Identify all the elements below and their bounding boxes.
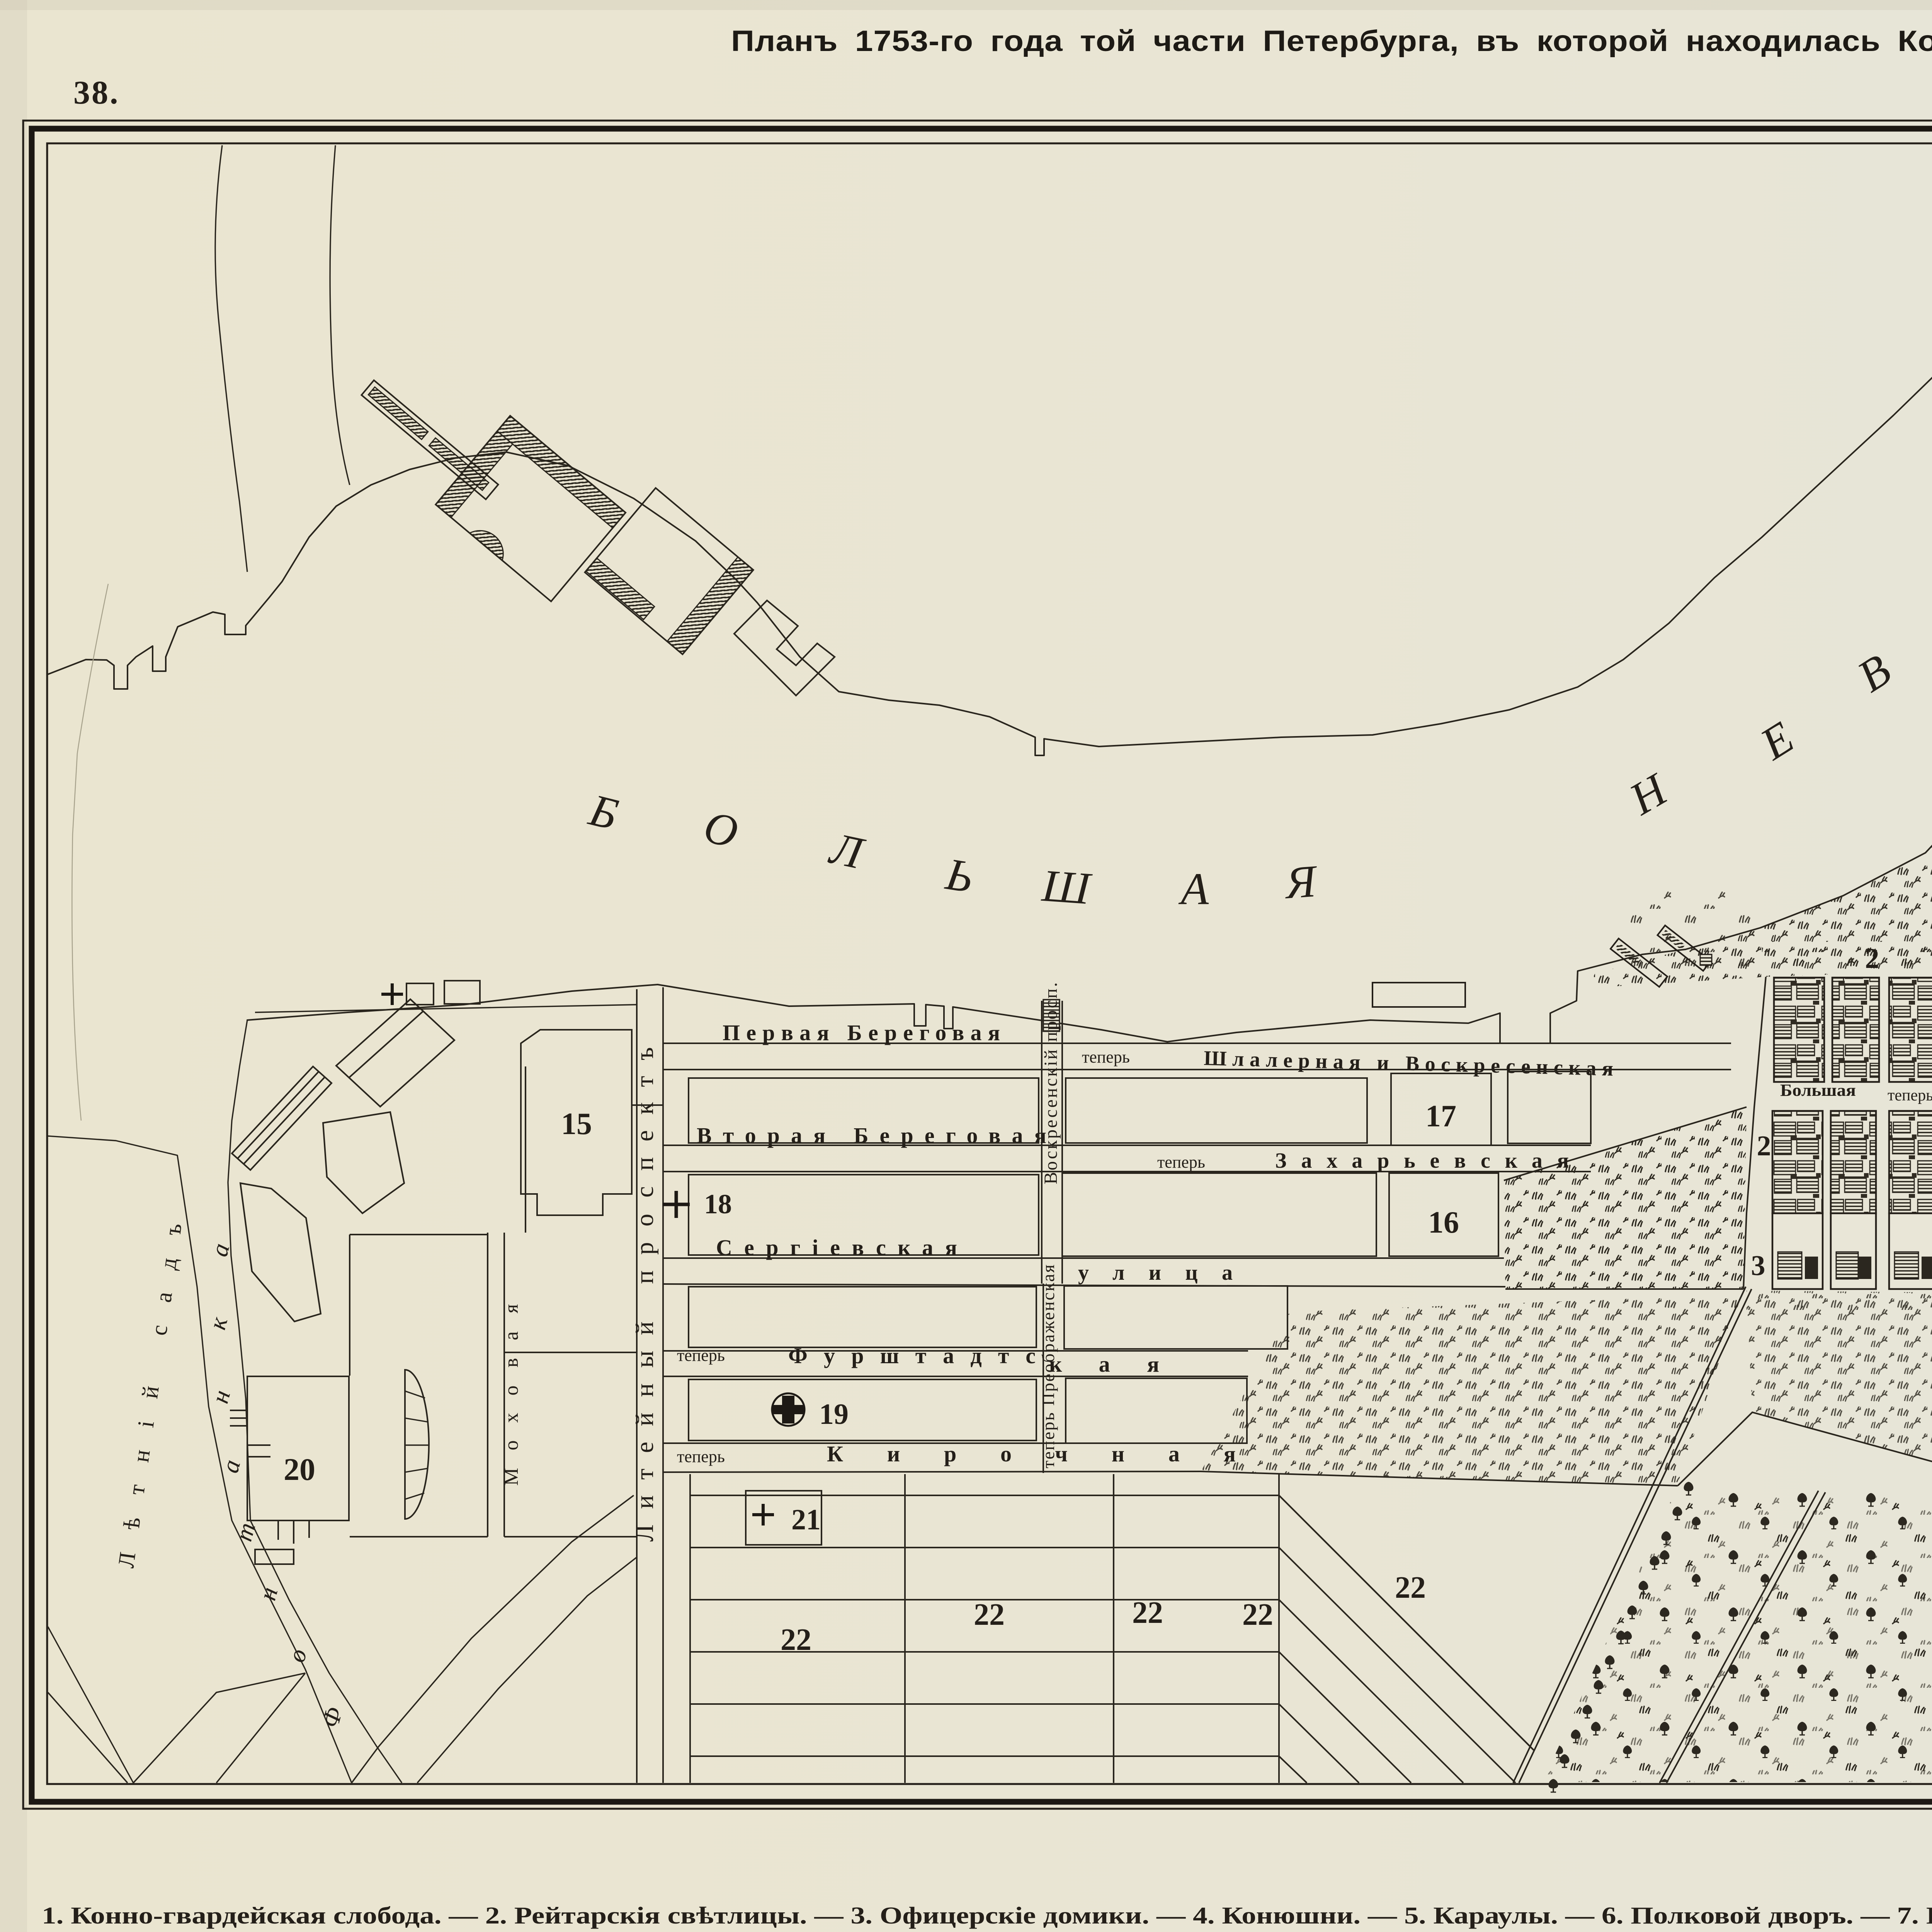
svg-text:18: 18 — [704, 1189, 732, 1219]
svg-text:19: 19 — [819, 1398, 849, 1430]
svg-text:Я: Я — [1282, 855, 1320, 908]
svg-text:15: 15 — [561, 1107, 592, 1141]
svg-text:Большая: Большая — [1780, 1081, 1856, 1100]
svg-text:теперь: теперь — [1888, 1087, 1932, 1104]
svg-text:17: 17 — [1425, 1099, 1456, 1133]
svg-text:Воскресенскій просп.: Воскресенскій просп. — [1041, 981, 1061, 1184]
svg-text:2: 2 — [1865, 943, 1879, 975]
svg-text:20: 20 — [284, 1452, 315, 1487]
svg-text:Первая Береговая: Первая Береговая — [723, 1020, 1000, 1045]
svg-text:Планъ 1753-го года той части П: Планъ 1753-го года той части Петербурга,… — [731, 25, 1932, 58]
svg-text:22: 22 — [781, 1623, 811, 1657]
svg-text:16: 16 — [1428, 1206, 1459, 1240]
svg-text:2: 2 — [1757, 1130, 1771, 1162]
svg-text:А: А — [1178, 864, 1209, 914]
svg-text:22: 22 — [974, 1598, 1005, 1632]
svg-text:1. Конно-гвардейская слобода.: 1. Конно-гвардейская слобода. — 2. Рейта… — [42, 1903, 1932, 1929]
svg-text:теперь: теперь — [1082, 1048, 1130, 1066]
svg-text:теперь: теперь — [1157, 1153, 1205, 1172]
svg-text:Ш: Ш — [1040, 860, 1094, 914]
svg-text:22: 22 — [1132, 1596, 1163, 1630]
svg-text:22: 22 — [1242, 1598, 1273, 1632]
svg-text:38.: 38. — [73, 74, 120, 111]
svg-text:теперь: теперь — [677, 1346, 725, 1365]
svg-text:теперь: теперь — [677, 1447, 725, 1466]
svg-text:21: 21 — [791, 1503, 821, 1536]
svg-text:3: 3 — [1751, 1250, 1765, 1282]
svg-text:22: 22 — [1395, 1571, 1426, 1605]
